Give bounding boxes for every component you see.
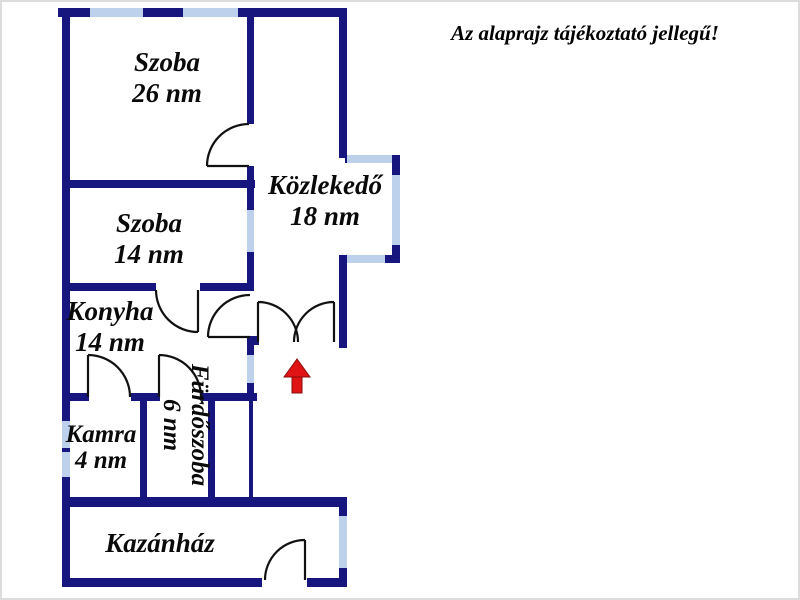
room-label-furdoszoba: Fürdőszoba 6 nm (153, 345, 213, 505)
room-name: Kamra (45, 422, 157, 448)
room-area: 14 nm (79, 239, 219, 270)
door-kazanhaz (265, 540, 305, 580)
door-konyha (208, 295, 250, 337)
room-label-kazanhaz: Kazánház (80, 528, 240, 559)
room-label-kozlekedo: Közlekedő 18 nm (256, 170, 394, 232)
door-kamra (88, 355, 130, 397)
room-name: Szoba (79, 208, 219, 239)
door-szoba26 (207, 124, 249, 166)
room-name: Konyha (45, 296, 175, 327)
entrance-arrow-icon (284, 359, 310, 393)
room-name: Fürdőszoba (185, 345, 213, 505)
door-entrance-left-leaf (258, 302, 298, 342)
room-area: 18 nm (256, 201, 394, 232)
room-label-szoba26: Szoba 26 nm (97, 47, 237, 109)
room-name: Kazánház (80, 528, 240, 559)
room-label-kamra: Kamra 4 nm (45, 422, 157, 474)
room-name: Közlekedő (256, 170, 394, 201)
room-label-szoba14: Szoba 14 nm (79, 208, 219, 270)
door-entrance-right-leaf (294, 302, 334, 342)
room-area: 6 nm (157, 345, 185, 505)
floorplan: Az alaprajz tájékoztató jellegű! (0, 0, 800, 600)
room-area: 4 nm (45, 448, 157, 474)
room-name: Szoba (97, 47, 237, 78)
room-area: 26 nm (97, 78, 237, 109)
